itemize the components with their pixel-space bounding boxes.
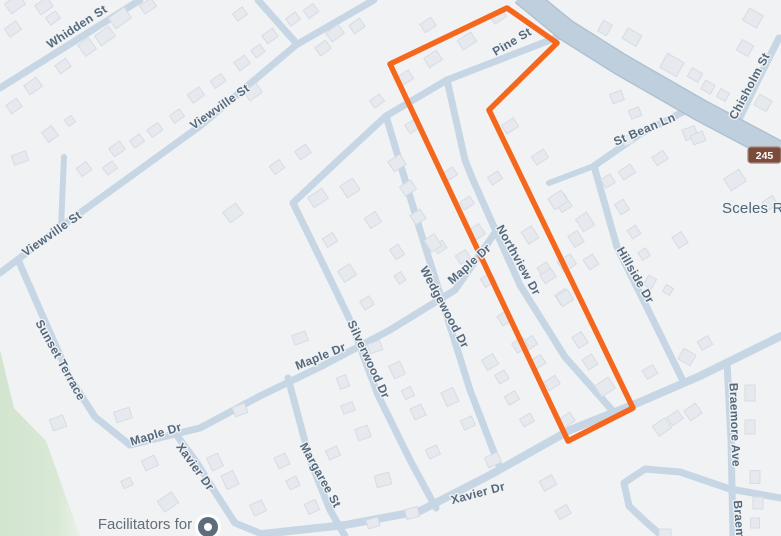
building bbox=[751, 518, 760, 528]
building bbox=[745, 385, 755, 401]
poi-label-line1[interactable]: Facilitators for bbox=[98, 516, 192, 533]
street-label-18: Braem bbox=[731, 500, 748, 536]
building bbox=[753, 497, 763, 509]
route-shield-number: 245 bbox=[756, 150, 774, 162]
map-canvas[interactable]: Whidden StViewville StViewville StPine S… bbox=[0, 0, 781, 536]
locality-label: Sceles Re bbox=[722, 200, 781, 217]
building bbox=[659, 529, 671, 536]
building bbox=[750, 471, 760, 484]
street-label-17: Braemore Ave bbox=[727, 383, 744, 468]
poi-icon-hole bbox=[204, 523, 212, 531]
map-viewport[interactable]: Whidden StViewville StViewville StPine S… bbox=[0, 0, 781, 536]
building bbox=[745, 420, 755, 434]
